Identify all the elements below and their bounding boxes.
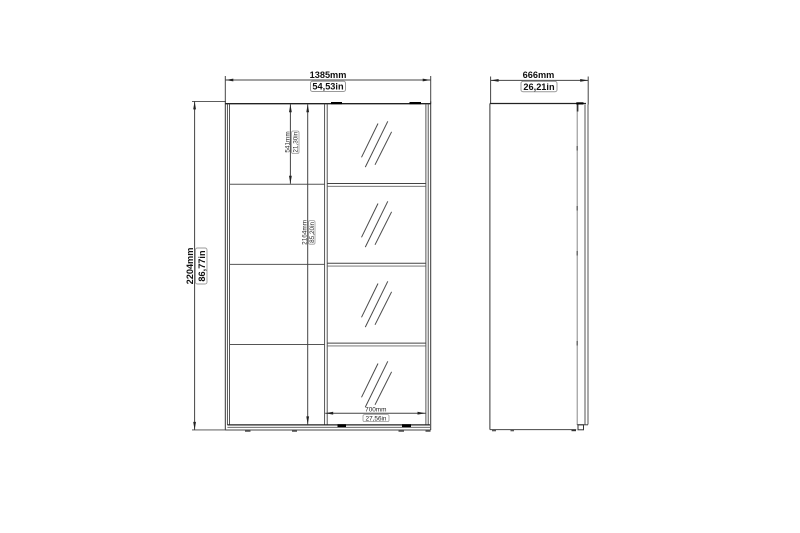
svg-text:26,21in: 26,21in [523, 82, 555, 92]
svg-text:85,20in: 85,20in [309, 221, 316, 242]
svg-text:21,30in: 21,30in [292, 131, 299, 152]
svg-text:27,56in: 27,56in [366, 415, 387, 422]
svg-text:541mm: 541mm [284, 131, 291, 152]
svg-text:700mm: 700mm [365, 407, 386, 414]
svg-text:1385mm: 1385mm [310, 70, 347, 80]
svg-text:86,77in: 86,77in [197, 250, 207, 282]
svg-text:2204mm: 2204mm [185, 248, 195, 285]
svg-text:54,53in: 54,53in [312, 82, 344, 92]
svg-text:2164mm: 2164mm [301, 220, 308, 245]
svg-text:666mm: 666mm [523, 70, 555, 80]
